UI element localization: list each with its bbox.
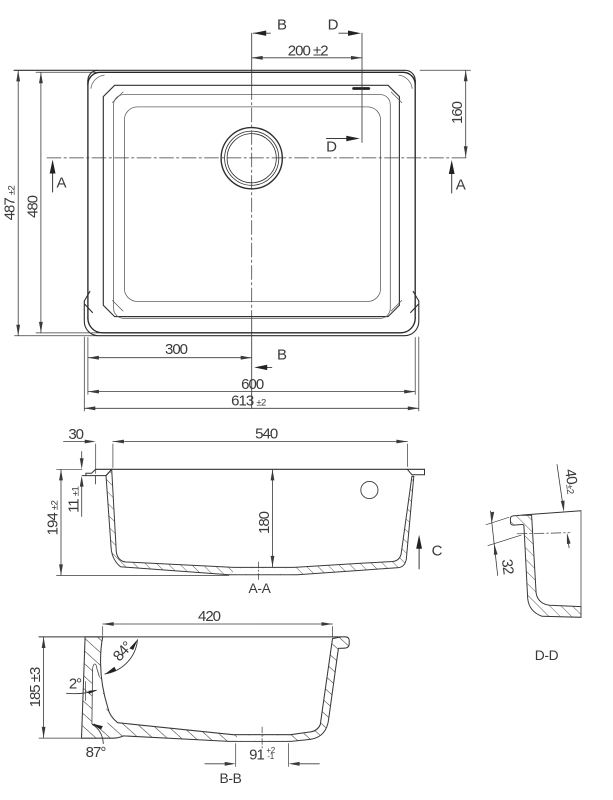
svg-text:180: 180	[256, 511, 273, 534]
svg-text:C: C	[432, 543, 443, 560]
svg-text:B: B	[277, 347, 287, 364]
svg-text:600: 600	[241, 376, 264, 393]
svg-text:420: 420	[198, 608, 221, 625]
svg-text:D: D	[328, 17, 339, 34]
svg-text:A-A: A-A	[248, 581, 271, 596]
svg-text:11 ±1: 11 ±1	[65, 486, 82, 512]
svg-text:±2: ±2	[563, 484, 575, 495]
svg-text:A: A	[456, 177, 466, 194]
svg-text:185 ±3: 185 ±3	[27, 667, 44, 707]
svg-text:613 ±2: 613 ±2	[231, 392, 266, 409]
svg-text:194 ±2: 194 ±2	[44, 500, 61, 535]
svg-text:40: 40	[561, 468, 580, 486]
svg-text:A: A	[56, 175, 66, 192]
svg-text:B: B	[277, 17, 287, 34]
svg-text:300: 300	[165, 341, 188, 358]
svg-text:84°: 84°	[110, 638, 136, 665]
svg-text:487 ±2: 487 ±2	[2, 185, 19, 220]
svg-text:160: 160	[449, 101, 466, 124]
svg-text:2°: 2°	[69, 676, 82, 693]
svg-text:30: 30	[68, 426, 83, 443]
svg-text:91: 91	[249, 747, 264, 764]
svg-text:87°: 87°	[86, 744, 107, 761]
svg-text:32: 32	[498, 558, 517, 575]
svg-text:D: D	[326, 139, 337, 156]
svg-text:-1: -1	[267, 752, 274, 761]
svg-text:200 ±2: 200 ±2	[288, 42, 328, 59]
svg-text:B-B: B-B	[219, 771, 241, 786]
svg-text:540: 540	[255, 426, 278, 443]
svg-text:D-D: D-D	[535, 648, 559, 663]
svg-text:480: 480	[24, 195, 41, 218]
